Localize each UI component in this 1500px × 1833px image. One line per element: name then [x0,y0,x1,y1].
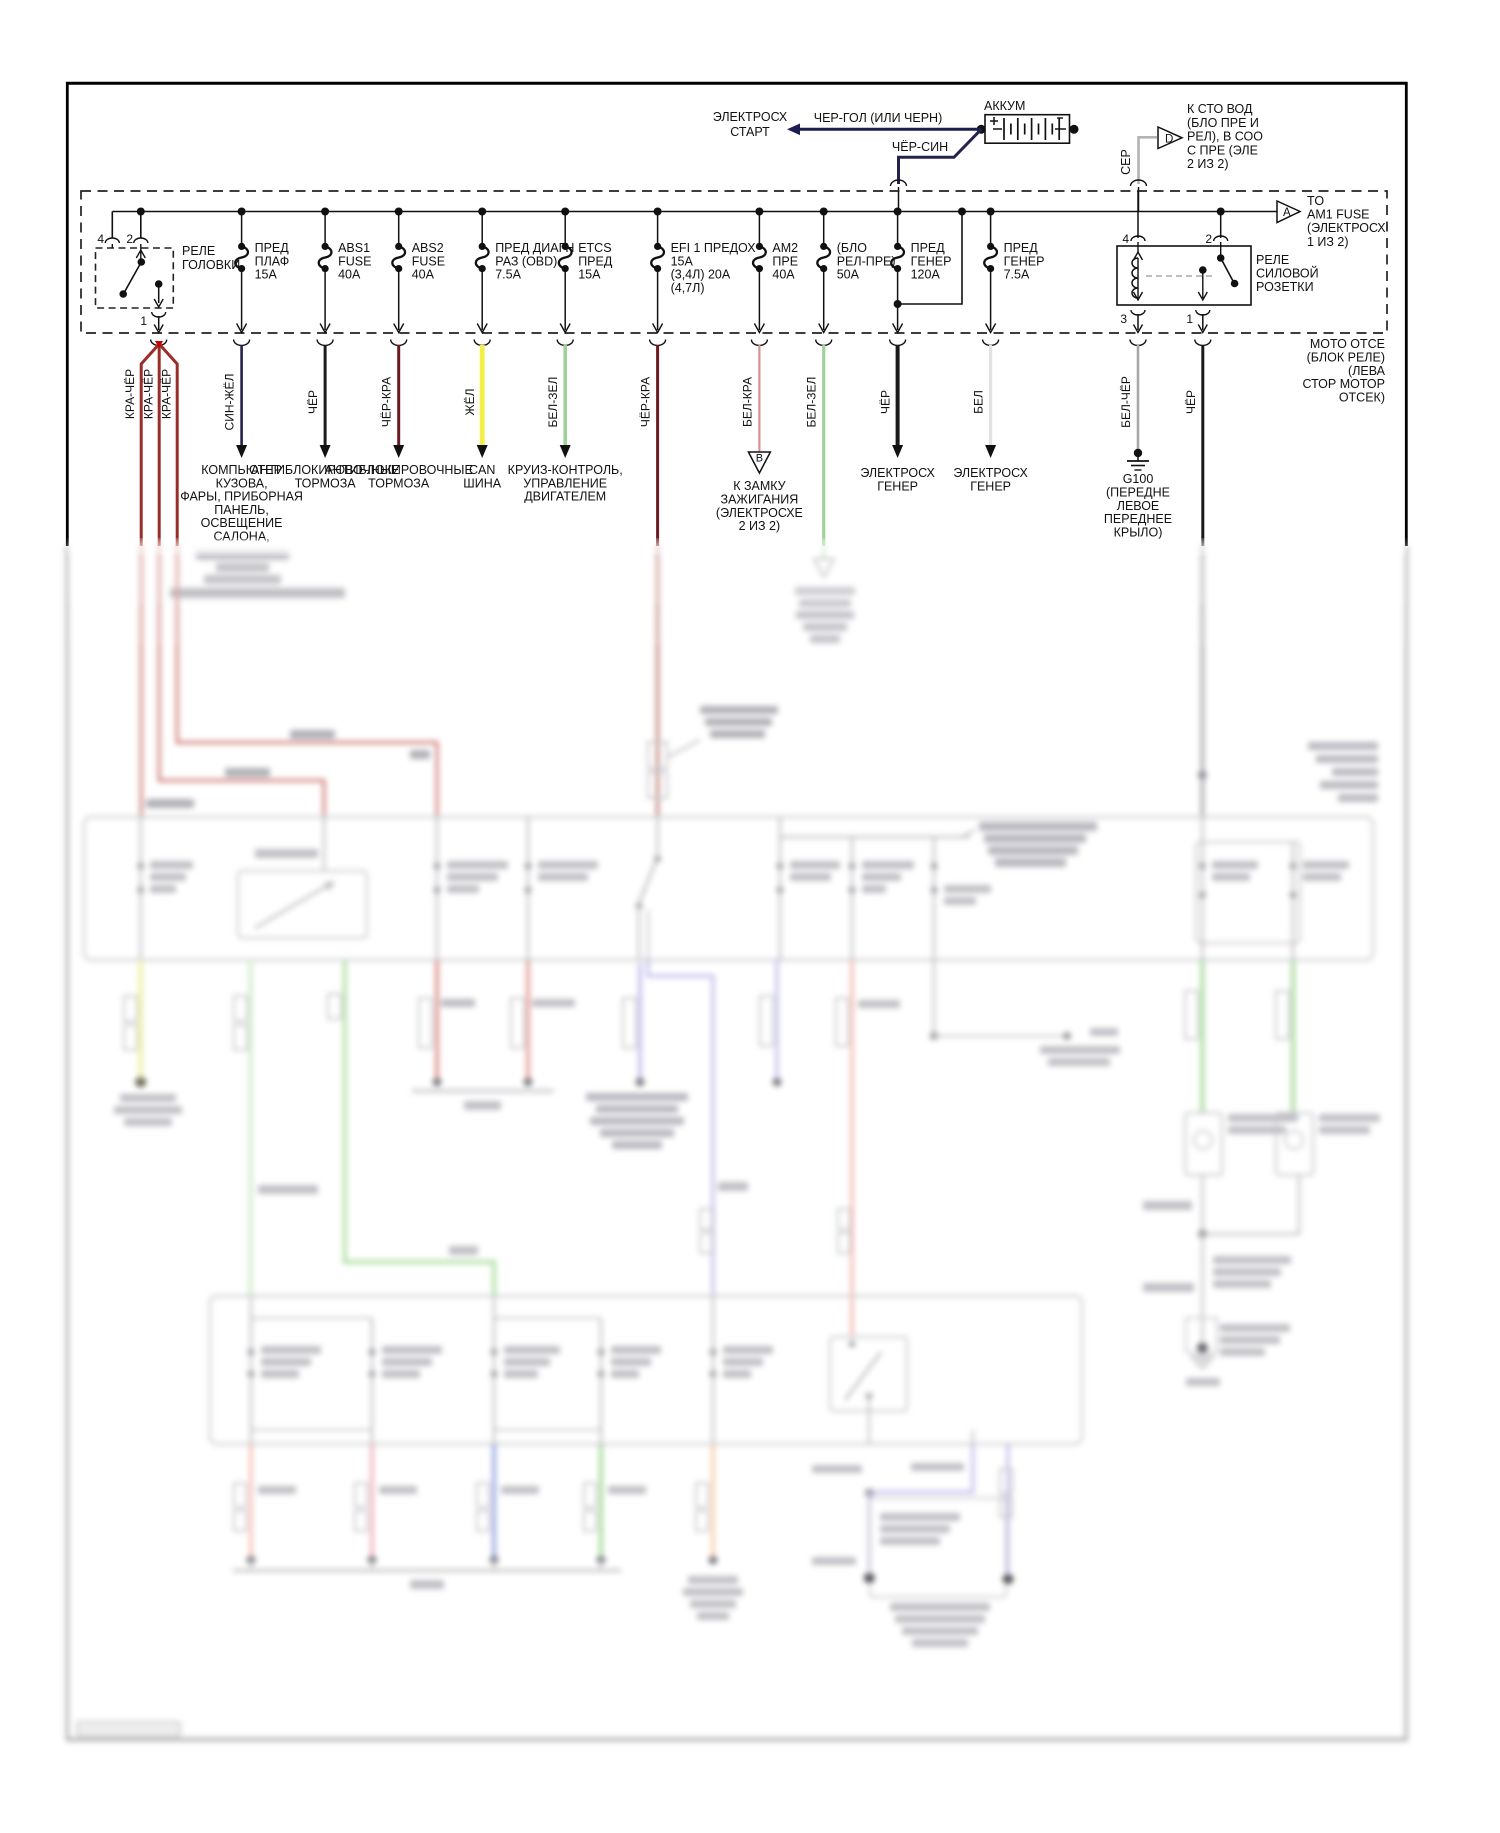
svg-text:ЧЕР-ГОЛ (ИЛИ ЧЕРН): ЧЕР-ГОЛ (ИЛИ ЧЕРН) [814,111,943,125]
svg-text:EFI 1 ПРЕДОХ: EFI 1 ПРЕДОХ [671,241,757,255]
svg-text:ДВИГАТЕЛЕМ: ДВИГАТЕЛЕМ [524,490,606,504]
svg-text:(ПЕРЕДНЕ: (ПЕРЕДНЕ [1106,485,1170,499]
svg-text:15А: 15А [578,268,601,282]
svg-text:ОСВЕЩЕНИЕ: ОСВЕЩЕНИЕ [201,516,283,530]
svg-text:15А: 15А [671,254,694,268]
svg-text:7.5А: 7.5А [1004,268,1030,282]
svg-text:40А: 40А [412,268,435,282]
svg-text:ЧЁР-КРА: ЧЁР-КРА [380,377,394,427]
svg-text:ПЕРЕДНЕЕ: ПЕРЕДНЕЕ [1104,512,1172,526]
svg-text:3: 3 [1120,312,1127,326]
svg-text:B: B [756,453,763,465]
svg-text:15А: 15А [255,268,278,282]
svg-text:2 ИЗ 2): 2 ИЗ 2) [739,519,781,533]
svg-text:ЧЁР: ЧЁР [306,390,320,414]
svg-text:АНТИБЛОКИРОВОЧНЫЕ: АНТИБЛОКИРОВОЧНЫЕ [325,463,473,477]
svg-text:К ЗАМКУ: К ЗАМКУ [733,479,785,493]
svg-text:7.5А: 7.5А [495,268,521,282]
svg-text:ПАНЕЛЬ,: ПАНЕЛЬ, [214,503,269,517]
svg-text:(ЭЛЕКТРОСХ: (ЭЛЕКТРОСХ [1307,221,1386,235]
svg-text:РОЗЕТКИ: РОЗЕТКИ [1256,280,1314,294]
svg-text:ГОЛОВКИ: ГОЛОВКИ [182,258,240,272]
svg-text:(3,4Л) 20А: (3,4Л) 20А [671,268,731,282]
svg-text:ПРЕ: ПРЕ [772,254,798,268]
svg-text:МОТО ОТСЕ: МОТО ОТСЕ [1310,337,1385,351]
svg-text:КРА-ЧЁР: КРА-ЧЁР [123,369,137,419]
svg-text:(ЛЕВА: (ЛЕВА [1348,364,1386,378]
svg-text:АМ2: АМ2 [772,241,798,255]
svg-text:ЧЁР: ЧЁР [1184,390,1198,414]
svg-text:БЕЛ-ЗЕЛ: БЕЛ-ЗЕЛ [546,377,560,428]
svg-text:(4,7Л): (4,7Л) [671,281,705,295]
svg-text:D: D [1165,134,1173,146]
svg-text:РЕЛ-ПРЕ): РЕЛ-ПРЕ) [837,254,896,268]
svg-text:ОТСЕК): ОТСЕК) [1339,391,1385,405]
svg-text:1: 1 [1186,312,1193,326]
svg-text:ЗАЖИГАНИЯ: ЗАЖИГАНИЯ [721,492,799,506]
svg-text:2 ИЗ 2): 2 ИЗ 2) [1187,157,1229,171]
svg-text:1: 1 [140,314,147,328]
svg-text:ШИНА: ШИНА [463,476,501,490]
svg-text:СТОР МОТОР: СТОР МОТОР [1303,377,1386,391]
svg-text:ETCS: ETCS [578,241,611,255]
svg-text:ТОРМОЗА: ТОРМОЗА [368,476,430,490]
svg-text:КРА-ЧЁР: КРА-ЧЁР [142,369,156,419]
svg-text:ЖЁЛ: ЖЁЛ [463,389,477,416]
svg-text:ЭЛЕКТРОСХ: ЭЛЕКТРОСХ [713,110,788,124]
svg-text:(БЛОК РЕЛЕ): (БЛОК РЕЛЕ) [1307,350,1385,364]
svg-text:ПРЕД: ПРЕД [1004,241,1039,255]
svg-text:ГЕНЕР: ГЕНЕР [970,479,1011,493]
svg-text:КРЫЛО): КРЫЛО) [1114,526,1163,540]
svg-text:FUSE: FUSE [412,254,445,268]
svg-text:(БЛО ПРЕ И: (БЛО ПРЕ И [1187,116,1259,130]
svg-text:50А: 50А [837,268,860,282]
svg-text:ПЛАФ: ПЛАФ [255,254,290,268]
svg-text:УПРАВЛЕНИЕ: УПРАВЛЕНИЕ [523,476,607,490]
svg-text:РАЗ (OBD): РАЗ (OBD) [495,254,557,268]
svg-text:К СТО ВОД: К СТО ВОД [1187,102,1253,116]
svg-text:40А: 40А [338,268,361,282]
svg-text:G100: G100 [1123,472,1154,486]
svg-text:ПРЕД: ПРЕД [255,241,290,255]
svg-text:ГЕНЕР: ГЕНЕР [911,254,952,268]
svg-text:AM1 FUSE: AM1 FUSE [1307,208,1370,222]
svg-text:ЧЁР: ЧЁР [879,390,893,414]
svg-text:ГЕНЕР: ГЕНЕР [1004,254,1045,268]
svg-text:FUSE: FUSE [338,254,371,268]
svg-text:ЭЛЕКТРОСХ: ЭЛЕКТРОСХ [860,466,935,480]
svg-text:(БЛО: (БЛО [837,241,868,255]
svg-text:СИЛОВОЙ: СИЛОВОЙ [1256,265,1319,280]
svg-text:РЕЛ), В СОО: РЕЛ), В СОО [1187,130,1263,144]
svg-text:ABS2: ABS2 [412,241,444,255]
svg-text:ФАРЫ, ПРИБОРНАЯ: ФАРЫ, ПРИБОРНАЯ [180,490,303,504]
svg-text:120А: 120А [911,268,941,282]
svg-text:БЕЛ: БЕЛ [972,390,986,414]
svg-text:4: 4 [97,232,104,246]
svg-text:TO: TO [1307,194,1324,208]
svg-text:4: 4 [1122,232,1129,246]
svg-text:КРУИЗ-КОНТРОЛЬ,: КРУИЗ-КОНТРОЛЬ, [508,463,623,477]
svg-text:СИН-ЖЁЛ: СИН-ЖЁЛ [223,374,237,431]
svg-text:2: 2 [1205,232,1212,246]
svg-text:ТОРМОЗА: ТОРМОЗА [295,476,357,490]
svg-text:CAN: CAN [469,463,495,477]
svg-text:С ПРЕ (ЭЛЕ: С ПРЕ (ЭЛЕ [1187,143,1258,157]
svg-text:1 ИЗ 2): 1 ИЗ 2) [1307,235,1349,249]
svg-text:(ЭЛЕКТРОСХЕ: (ЭЛЕКТРОСХЕ [716,506,803,520]
svg-text:РЕЛЕ: РЕЛЕ [1256,253,1289,267]
svg-text:БЕЛ-ЗЕЛ: БЕЛ-ЗЕЛ [805,377,819,428]
svg-text:ЧЁР-СИН: ЧЁР-СИН [892,140,948,154]
svg-text:ГЕНЕР: ГЕНЕР [877,479,918,493]
svg-text:ABS1: ABS1 [338,241,370,255]
svg-text:ПРЕД: ПРЕД [578,254,613,268]
svg-text:КУЗОВА,: КУЗОВА, [216,476,268,490]
svg-text:РЕЛЕ: РЕЛЕ [182,244,215,258]
svg-text:АККУМ: АККУМ [984,99,1025,113]
svg-text:КРА-ЧЁР: КРА-ЧЁР [160,369,174,419]
svg-text:40А: 40А [772,268,795,282]
svg-text:ПРЕД: ПРЕД [911,241,946,255]
svg-text:БЕЛ-ЧЁР: БЕЛ-ЧЁР [1119,376,1133,428]
svg-text:СТАРТ: СТАРТ [730,125,770,139]
svg-text:БЕЛ-КРА: БЕЛ-КРА [740,377,754,427]
svg-text:ЧЁР-КРА: ЧЁР-КРА [639,377,653,427]
svg-text:ЛЕВОЕ: ЛЕВОЕ [1117,499,1160,513]
svg-text:СЕР: СЕР [1119,149,1133,175]
svg-text:2: 2 [126,232,133,246]
svg-text:ЭЛЕКТРОСХ: ЭЛЕКТРОСХ [953,466,1028,480]
svg-text:A: A [1283,207,1291,219]
